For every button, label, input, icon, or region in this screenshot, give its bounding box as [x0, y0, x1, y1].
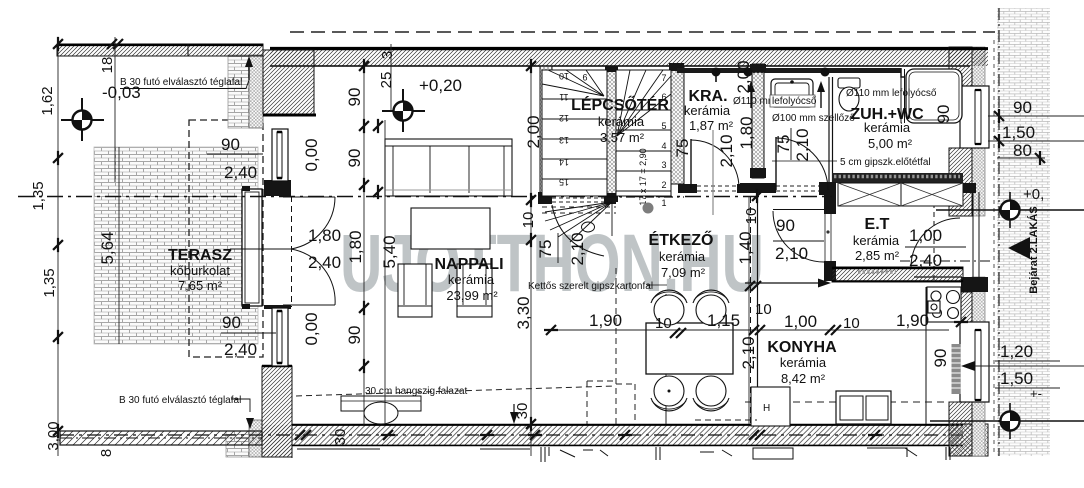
- svg-text:30 cm hangszig.falazat: 30 cm hangszig.falazat: [365, 386, 468, 397]
- svg-text:30: 30: [514, 403, 531, 420]
- svg-text:11: 11: [559, 92, 568, 102]
- svg-text:8,42 m²: 8,42 m²: [781, 371, 826, 386]
- svg-text:kerámia: kerámia: [780, 355, 827, 370]
- svg-text:+0,: +0,: [1023, 186, 1044, 203]
- svg-text:90: 90: [222, 313, 241, 332]
- svg-text:12: 12: [559, 113, 569, 123]
- svg-text:10: 10: [520, 212, 537, 229]
- svg-text:1,80: 1,80: [737, 116, 756, 149]
- svg-text:2,00: 2,00: [524, 115, 543, 148]
- svg-text:TERASZ: TERASZ: [168, 247, 232, 264]
- svg-text:LÉPCSŐTÉR: LÉPCSŐTÉR: [571, 95, 669, 114]
- svg-text:1,00: 1,00: [909, 226, 942, 245]
- svg-text:5: 5: [661, 121, 666, 131]
- svg-text:90: 90: [345, 326, 364, 345]
- svg-text:kerámia: kerámia: [853, 233, 900, 248]
- svg-text:1,62: 1,62: [39, 86, 56, 115]
- svg-text:2: 2: [661, 180, 666, 190]
- svg-text:10: 10: [559, 71, 569, 81]
- svg-text:kerámia: kerámia: [598, 114, 645, 129]
- svg-text:2,40: 2,40: [224, 163, 257, 182]
- svg-text:23,99 m²: 23,99 m²: [446, 288, 498, 303]
- svg-text:1,80: 1,80: [346, 230, 365, 263]
- svg-text:1,90: 1,90: [896, 311, 929, 330]
- svg-text:1,80: 1,80: [308, 226, 341, 245]
- svg-text:1: 1: [661, 198, 666, 208]
- svg-text:lefolyócső: lefolyócső: [772, 96, 817, 107]
- svg-text:5,00 m²: 5,00 m²: [868, 136, 913, 151]
- svg-text:Ø100 mm szellőző: Ø100 mm szellőző: [772, 113, 855, 124]
- svg-text:3,30: 3,30: [514, 296, 533, 329]
- svg-text:1,00: 1,00: [784, 312, 817, 331]
- svg-text:0,00: 0,00: [302, 138, 321, 171]
- svg-text:0,00: 0,00: [302, 312, 321, 345]
- svg-text:kerámia: kerámia: [864, 120, 911, 135]
- svg-text:15: 15: [559, 177, 569, 187]
- svg-text:7,65 m²: 7,65 m²: [178, 278, 223, 293]
- svg-text:7,09 m²: 7,09 m²: [661, 265, 706, 280]
- svg-text:1,87 m²: 1,87 m²: [689, 118, 734, 133]
- svg-text:3: 3: [661, 160, 666, 170]
- svg-text:25: 25: [378, 72, 395, 89]
- svg-text:90: 90: [221, 135, 240, 154]
- svg-text:1,20: 1,20: [1000, 342, 1033, 361]
- svg-text:KONYHA: KONYHA: [767, 339, 837, 356]
- svg-text:90: 90: [1013, 98, 1032, 117]
- svg-text:2,10: 2,10: [775, 244, 808, 263]
- svg-text:+0,20: +0,20: [419, 76, 462, 95]
- svg-text:E.T: E.T: [865, 216, 890, 233]
- svg-text:5,40: 5,40: [380, 235, 399, 268]
- svg-text:kerámia: kerámia: [448, 272, 495, 287]
- svg-text:2,40: 2,40: [308, 253, 341, 272]
- svg-text:10: 10: [655, 315, 672, 332]
- svg-text:1,35: 1,35: [30, 181, 47, 210]
- svg-text:kőburkolat: kőburkolat: [170, 263, 230, 278]
- svg-text:10: 10: [755, 301, 772, 318]
- svg-text:1,35: 1,35: [41, 268, 58, 297]
- svg-text:kerámia: kerámia: [659, 249, 706, 264]
- svg-text:2,40: 2,40: [909, 251, 942, 270]
- svg-text:5 cm gipszk.előtétfal: 5 cm gipszk.előtétfal: [840, 157, 931, 168]
- svg-text:1,50: 1,50: [1002, 123, 1035, 142]
- svg-text:10: 10: [743, 208, 760, 225]
- svg-text:3,00: 3,00: [45, 421, 62, 450]
- svg-text:90: 90: [934, 105, 953, 124]
- svg-text:2,10: 2,10: [793, 128, 812, 161]
- svg-text:14: 14: [559, 157, 569, 167]
- svg-text:5,64: 5,64: [98, 231, 117, 264]
- svg-text:3,57 m²: 3,57 m²: [600, 130, 645, 145]
- svg-text:75: 75: [536, 240, 555, 259]
- svg-text:10: 10: [843, 315, 860, 332]
- svg-text:kerámia: kerámia: [684, 103, 731, 118]
- svg-text:B 30 futó elválasztó téglafal: B 30 futó elválasztó téglafal: [120, 77, 242, 88]
- svg-text:4: 4: [661, 141, 666, 151]
- svg-text:13: 13: [559, 135, 569, 145]
- svg-text:18: 18: [99, 57, 116, 74]
- svg-text:75: 75: [673, 139, 692, 158]
- svg-text:90: 90: [931, 349, 950, 368]
- svg-text:90: 90: [345, 149, 364, 168]
- svg-text:2,85 m²: 2,85 m²: [855, 248, 900, 263]
- svg-text:2,10: 2,10: [568, 232, 587, 265]
- svg-text:90: 90: [345, 88, 364, 107]
- svg-text:Ø110 mm lefolyócső: Ø110 mm lefolyócső: [846, 88, 937, 99]
- svg-text:ÉTKEZŐ: ÉTKEZŐ: [649, 230, 714, 249]
- svg-text:75: 75: [774, 135, 793, 154]
- svg-text:1,40: 1,40: [736, 231, 755, 264]
- svg-text:H: H: [763, 403, 770, 414]
- svg-text:2,10: 2,10: [739, 336, 758, 369]
- svg-text:1,15: 1,15: [707, 311, 740, 330]
- svg-text:NAPPALI: NAPPALI: [434, 256, 503, 273]
- svg-text:1,90: 1,90: [589, 311, 622, 330]
- svg-text:B 30 futó elválasztó téglafal: B 30 futó elválasztó téglafal: [119, 395, 241, 406]
- svg-text:90: 90: [776, 216, 795, 235]
- svg-text:1,50: 1,50: [1000, 369, 1033, 388]
- svg-text:80: 80: [1013, 141, 1032, 160]
- svg-text:Kettős szerelt gipszkartonfal: Kettős szerelt gipszkartonfal: [528, 281, 653, 292]
- svg-text:7: 7: [661, 73, 666, 83]
- svg-text:9: 9: [582, 72, 587, 82]
- svg-text:30: 30: [332, 429, 349, 446]
- svg-text:3: 3: [379, 51, 396, 59]
- svg-text:2,10: 2,10: [717, 134, 736, 167]
- svg-text:2,40: 2,40: [224, 340, 257, 359]
- svg-text:8: 8: [98, 449, 115, 457]
